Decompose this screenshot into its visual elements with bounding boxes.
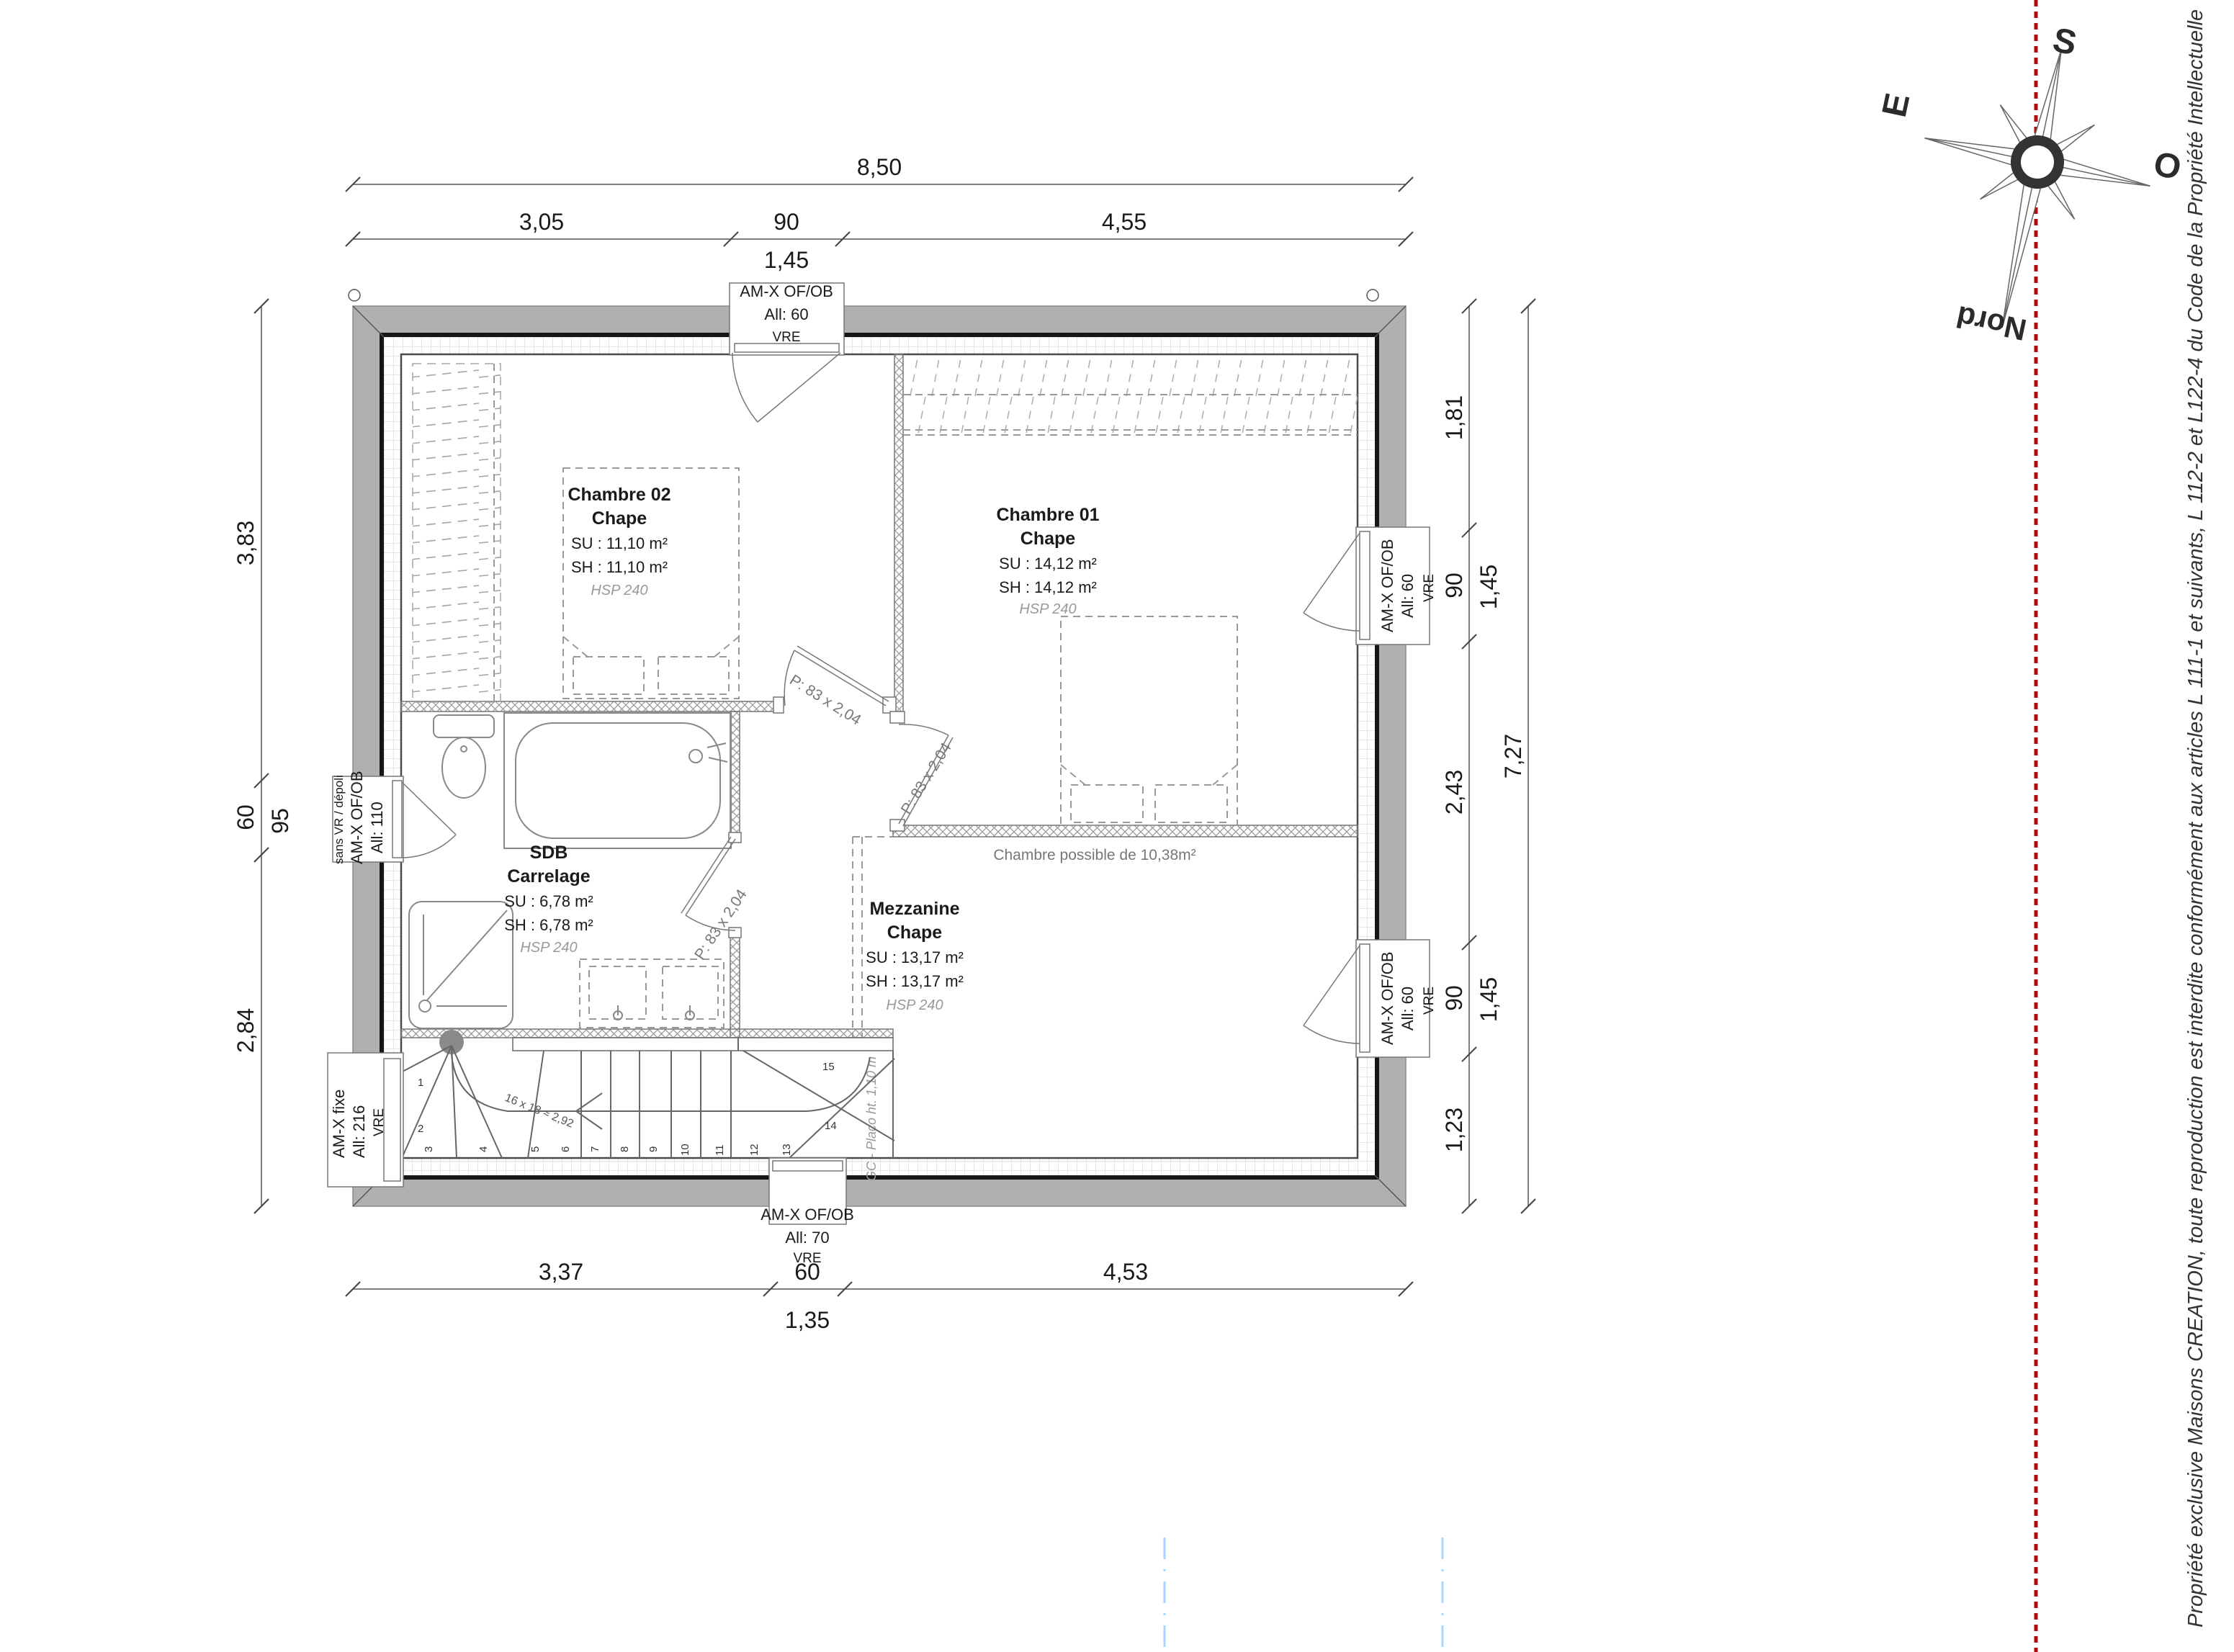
room-sh: SH : 14,12 m² bbox=[999, 578, 1097, 596]
compass-east-label: E bbox=[1875, 90, 1917, 120]
room-su: SU : 6,78 m² bbox=[504, 892, 593, 910]
room-hsp: HSP 240 bbox=[886, 997, 943, 1013]
stair-number: 12 bbox=[748, 1144, 761, 1156]
window-label: VRE bbox=[772, 330, 800, 345]
window-label: AM-X OF/OB bbox=[1378, 539, 1396, 632]
dim-label: 90 bbox=[1441, 985, 1467, 1011]
dim-label: 2,43 bbox=[1441, 770, 1467, 814]
dim-label: 1,45 bbox=[764, 247, 809, 273]
room-sh: SH : 11,10 m² bbox=[571, 558, 668, 576]
compass-south-label: S bbox=[2050, 21, 2080, 63]
compass-north-label: Nord bbox=[1953, 300, 2029, 347]
dim-label: 3,05 bbox=[519, 209, 564, 235]
dim-label: 1,23 bbox=[1441, 1108, 1467, 1152]
window-fixed: AM-X fixe All: 216 VRE bbox=[328, 1053, 403, 1187]
compass-west-label: O bbox=[2150, 145, 2185, 188]
dim-label: 4,53 bbox=[1103, 1259, 1148, 1285]
window-label: VRE bbox=[1422, 574, 1437, 602]
chambre-possible-note: Chambre possible de 10,38m² bbox=[993, 847, 1195, 863]
stair-number: 14 bbox=[825, 1120, 837, 1132]
compass-rose: S E O Nord bbox=[1875, 0, 2184, 1652]
room-hsp: HSP 240 bbox=[591, 583, 647, 598]
dimensions-bottom: 3,37 60 4,53 1,35 bbox=[346, 1259, 1413, 1333]
window-label: All: 110 bbox=[368, 802, 386, 853]
room-floor: Carrelage bbox=[507, 866, 590, 886]
fold-marks bbox=[1165, 1537, 1443, 1651]
corner-marker-left bbox=[349, 289, 360, 301]
dim-label: 60 bbox=[233, 804, 259, 830]
room-title: Chambre 02 bbox=[568, 485, 670, 505]
dim-label: 3,37 bbox=[539, 1259, 583, 1285]
room-su: SU : 14,12 m² bbox=[999, 555, 1097, 573]
dimensions-right: 1,81 90 2,43 90 1,23 1,45 1,45 7,27 bbox=[1441, 299, 1535, 1213]
dim-label: 90 bbox=[773, 209, 799, 235]
stair-number: 11 bbox=[714, 1144, 726, 1156]
stair-number: 8 bbox=[619, 1146, 631, 1152]
dim-label: 90 bbox=[1441, 573, 1467, 598]
stair-number: 7 bbox=[589, 1146, 601, 1152]
stair-number: 1 bbox=[418, 1077, 423, 1089]
window-label: All: 60 bbox=[764, 305, 808, 323]
window-label: VRE bbox=[1422, 987, 1437, 1015]
room-sh: SH : 6,78 m² bbox=[504, 916, 593, 934]
stair-number: 10 bbox=[679, 1144, 691, 1156]
dim-label: 2,84 bbox=[233, 1008, 259, 1053]
dim-label: 8,50 bbox=[857, 154, 902, 180]
window-label: VRE bbox=[372, 1108, 387, 1136]
room-su: SU : 11,10 m² bbox=[571, 534, 668, 552]
dim-label: 3,83 bbox=[233, 521, 259, 565]
dim-label: 1,81 bbox=[1441, 395, 1467, 440]
dim-label: 4,55 bbox=[1102, 209, 1147, 235]
copyright-text: Propriété exclusive Maisons CREATION, to… bbox=[2184, 9, 2207, 1628]
stair-number: 13 bbox=[781, 1144, 793, 1156]
window-label: AM-X OF/OB bbox=[761, 1206, 854, 1224]
stair-number: 4 bbox=[477, 1146, 490, 1152]
stair-number: 5 bbox=[529, 1146, 542, 1152]
window-label: All: 70 bbox=[785, 1229, 829, 1247]
window-label: AM-X fixe bbox=[330, 1090, 348, 1158]
window-bottom: AM-X OF/OB All: 70 VRE bbox=[761, 1158, 854, 1266]
room-floor: Chape bbox=[592, 508, 647, 529]
room-title: Chambre 01 bbox=[996, 505, 1099, 525]
room-hsp: HSP 240 bbox=[520, 940, 577, 956]
dim-label: 60 bbox=[794, 1259, 820, 1285]
window-label: sans VR / dépoli bbox=[332, 775, 346, 864]
window-label: All: 60 bbox=[1399, 987, 1417, 1031]
room-title: Mezzanine bbox=[869, 899, 959, 919]
wardrobe bbox=[413, 364, 501, 702]
dim-label: 95 bbox=[267, 808, 293, 834]
room-floor: Chape bbox=[1020, 529, 1076, 549]
dimensions-left: 3,83 60 2,84 95 bbox=[233, 299, 293, 1213]
dim-label: 1,35 bbox=[785, 1307, 830, 1333]
room-su: SU : 13,17 m² bbox=[866, 948, 964, 966]
window-label: All: 216 bbox=[350, 1105, 368, 1158]
stair-number: 2 bbox=[418, 1123, 423, 1135]
window-label: AM-X OF/OB bbox=[1378, 951, 1396, 1045]
stair-number: 15 bbox=[822, 1061, 835, 1073]
corner-marker-right bbox=[1367, 289, 1378, 301]
floor-plan-drawing: Chambre 02 Chape SU : 11,10 m² SH : 11,1… bbox=[0, 0, 2234, 1652]
dim-label: 7,27 bbox=[1500, 734, 1526, 778]
stair-number: 3 bbox=[423, 1146, 435, 1152]
room-floor: Chape bbox=[887, 922, 943, 943]
dim-label: 1,45 bbox=[1476, 565, 1502, 609]
stair-number: 6 bbox=[560, 1146, 572, 1152]
room-title: SDB bbox=[530, 843, 568, 863]
window-label: AM-X OF/OB bbox=[348, 771, 366, 864]
stair-number: 9 bbox=[647, 1146, 660, 1152]
dimensions-top: 8,50 3,05 90 4,55 1,45 bbox=[346, 154, 1413, 273]
dim-label: 1,45 bbox=[1476, 977, 1502, 1022]
window-label: AM-X OF/OB bbox=[740, 282, 833, 300]
room-hsp: HSP 240 bbox=[1019, 601, 1076, 617]
floor-plan-page: Chambre 02 Chape SU : 11,10 m² SH : 11,1… bbox=[0, 0, 2234, 1652]
room-sh: SH : 13,17 m² bbox=[866, 972, 964, 990]
window-label: All: 60 bbox=[1399, 574, 1417, 618]
